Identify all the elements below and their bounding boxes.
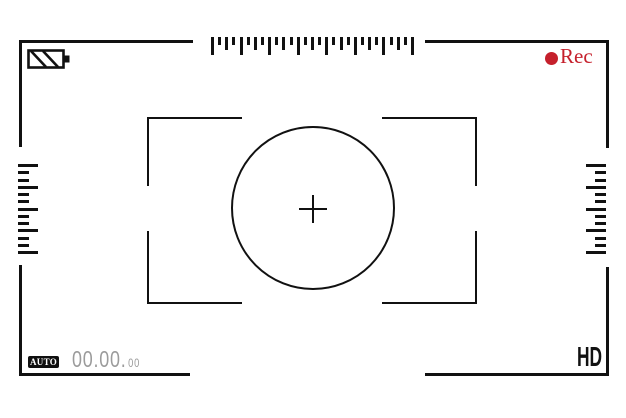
ruler-tick [595,200,606,203]
ruler-tick [18,200,29,203]
ruler-tick [586,229,606,232]
ruler-tick [18,164,38,167]
ruler-tick [247,37,250,45]
ruler-tick [18,215,29,218]
focus-frame-right-upper-segment [475,117,477,186]
ruler-tick [595,244,606,247]
ruler-tick [404,37,407,45]
ruler-tick [411,37,414,55]
ruler-tick [18,251,38,254]
ruler-tick [18,222,29,225]
outer-frame-top-right-segment [425,40,609,43]
ruler-tick [347,37,350,45]
ruler-tick [211,37,214,55]
ruler-tick [595,179,606,182]
ruler-tick [18,171,29,174]
ruler-tick [18,237,29,240]
ruler-tick [290,37,293,45]
ruler-tick [375,37,378,45]
focus-frame-bottom-left-segment [147,302,242,304]
ruler-tick [261,37,264,45]
ruler-tick [586,251,606,254]
outer-frame-left-lower-segment [19,265,22,376]
ruler-tick [325,37,328,55]
focus-frame-top-right-segment [382,117,477,119]
outer-frame-right-lower-segment [606,267,609,376]
focus-frame-left-lower-segment [147,231,149,304]
ruler-tick [595,237,606,240]
ruler-tick [595,171,606,174]
ruler-tick [275,37,278,45]
outer-frame-bottom-left-segment [19,373,190,376]
ruler-tick [18,229,38,232]
viewfinder-illustration: Rec AUTO 00.00. 00 HD [0,0,626,418]
ruler-tick [318,37,321,45]
ruler-tick [218,37,221,45]
ruler-tick [18,179,29,182]
ruler-tick [311,37,314,50]
ruler-tick [18,186,38,189]
ruler-tick [382,37,385,55]
ruler-tick [397,37,400,50]
ruler-tick [368,37,371,50]
ruler-tick [18,244,29,247]
ruler-tick [595,193,606,196]
ruler-tick [595,215,606,218]
ruler-tick [297,37,300,55]
hd-quality-label: HD [577,343,602,371]
ruler-tick [595,222,606,225]
ruler-tick [586,164,606,167]
ruler-tick [232,37,235,45]
ruler-tick [282,37,285,50]
focus-frame-right-lower-segment [475,231,477,304]
timer-frame-digits: 00 [128,357,140,369]
top-scale-ruler [211,37,414,55]
focus-frame-left-upper-segment [147,117,149,186]
focus-frame-bottom-right-segment [382,302,477,304]
ruler-tick [586,208,606,211]
ruler-tick [354,37,357,55]
auto-mode-badge: AUTO [28,356,59,368]
recording-timer: 00.00. 00 [72,348,140,371]
ruler-tick [18,193,29,196]
ruler-tick [586,186,606,189]
ruler-tick [254,37,257,50]
right-scale-ruler [586,164,606,254]
battery-icon [26,47,70,71]
ruler-tick [304,37,307,45]
record-dot-icon [545,52,558,65]
focus-frame-top-left-segment [147,117,242,119]
left-scale-ruler [18,164,38,254]
rec-label: Rec [560,45,593,68]
ruler-tick [340,37,343,50]
ruler-tick [361,37,364,45]
outer-frame-bottom-right-segment [425,373,609,376]
ruler-tick [225,37,228,50]
ruler-tick [18,208,38,211]
ruler-tick [390,37,393,45]
timer-main-digits: 00.00. [72,348,127,371]
outer-frame-right-upper-segment [606,40,609,148]
outer-frame-left-upper-segment [19,40,22,147]
outer-frame-top-left-segment [19,40,193,43]
ruler-tick [332,37,335,45]
ruler-tick [268,37,271,55]
ruler-tick [240,37,243,55]
crosshair-icon [312,195,314,223]
